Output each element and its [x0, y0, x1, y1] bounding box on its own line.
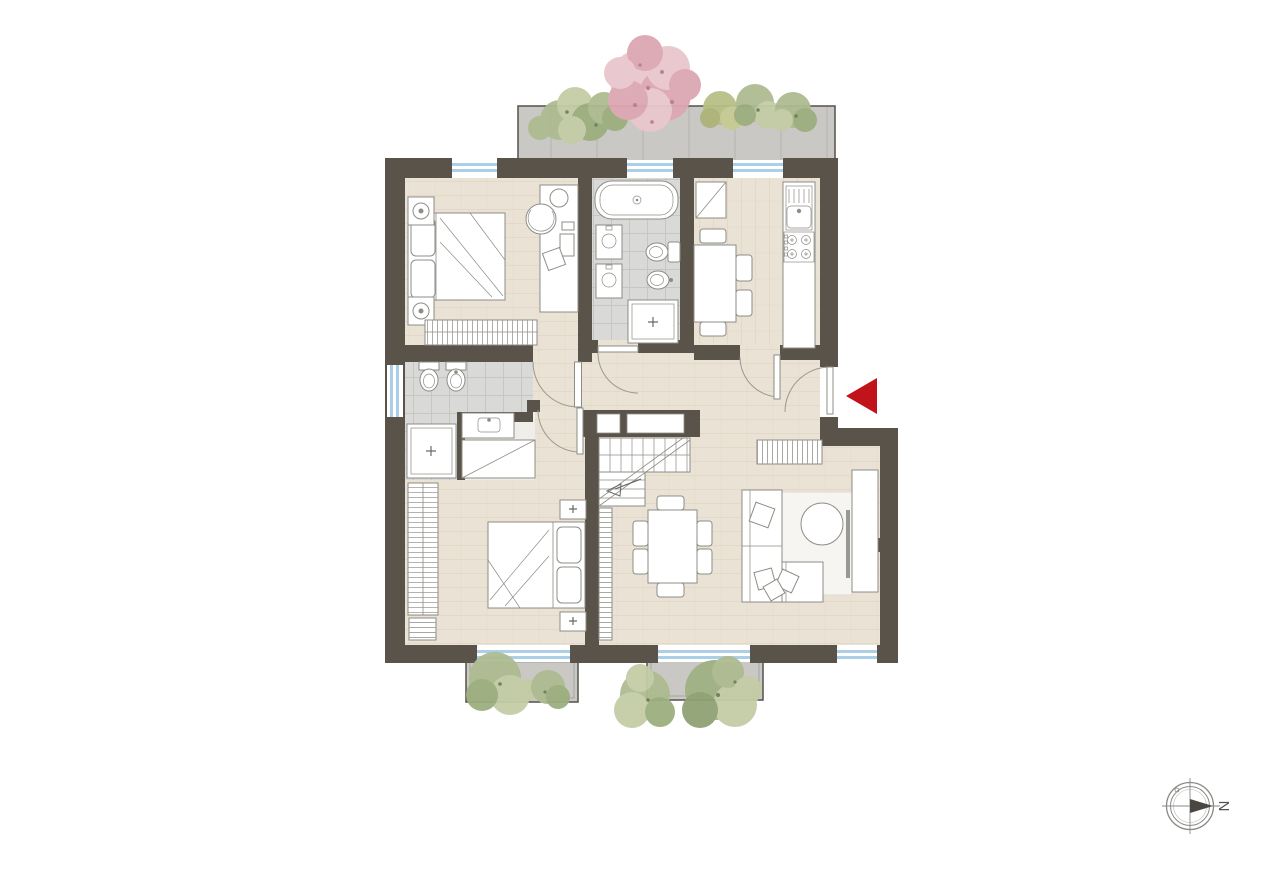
window-bathroom-main: [627, 160, 673, 176]
floor-plan-drawing: N: [0, 0, 1280, 893]
bidet-second: [446, 362, 466, 391]
wall-niches: [597, 414, 684, 433]
coffee-table: [801, 503, 843, 545]
bed-double-2: [488, 522, 585, 608]
nightstand-1a: [408, 197, 434, 225]
sink-vanity-2: [596, 264, 622, 298]
kitchen-corner-cabinet: [696, 182, 726, 218]
radiator-bedroom2: [409, 618, 436, 640]
radiator-dining: [599, 508, 612, 640]
shower-second: [407, 424, 456, 478]
toilet-main: [646, 242, 680, 262]
red-triangle-left-icon: [846, 378, 877, 414]
nightstand-2a: [560, 500, 586, 519]
desk-bedroom1: [540, 185, 578, 312]
window-bathroom-second: [387, 365, 403, 417]
compass-north-label: N: [1215, 801, 1232, 812]
sink-vanity-1: [596, 225, 622, 259]
closet-unit: [462, 440, 535, 478]
kitchen-counter: [783, 182, 815, 348]
window-kitchen: [733, 160, 783, 176]
vanity-second: [462, 413, 514, 438]
compass-rose-icon: N: [1162, 778, 1232, 834]
wardrobe-bedroom2: [408, 483, 438, 615]
radiator-living: [757, 440, 822, 464]
bed-double-1: [408, 213, 505, 300]
toilet-second: [419, 362, 439, 391]
window-bedroom1: [452, 160, 497, 176]
window-living: [837, 647, 877, 662]
bathtub: [595, 181, 678, 219]
shower-main: [628, 300, 678, 343]
nightstand-2b: [560, 612, 586, 631]
wardrobe-bedroom1: [425, 320, 537, 345]
floor-plan-page: N: [0, 0, 1280, 893]
desk-chair: [526, 204, 556, 234]
